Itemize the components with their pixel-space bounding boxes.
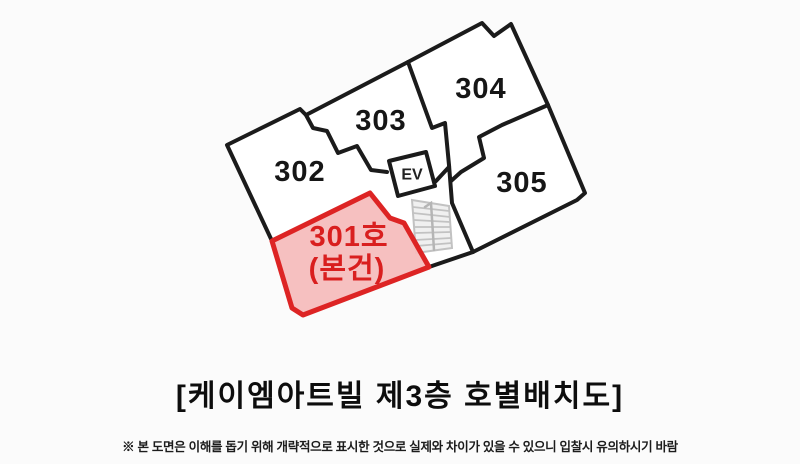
unit-301-sublabel: (본건)	[309, 252, 386, 285]
diagram-title: [케이엠아트빌 제3층 호별배치도]	[0, 371, 800, 415]
unit-302-label: 302	[274, 156, 325, 188]
floor-plan-page: EV 302 303 304 305 301호 (본건) [케이엠아트빌 제3층…	[0, 0, 800, 464]
unit-305-label: 305	[496, 167, 547, 199]
unit-301-label: 301호	[309, 221, 388, 253]
unit-303-label: 303	[355, 105, 406, 137]
elevator-label: EV	[401, 167, 423, 184]
disclaimer-note: ※ 본 도면은 이해를 돕기 위해 개략적으로 표시한 것으로 실제와 차이가 …	[0, 436, 800, 455]
unit-304-label: 304	[455, 73, 506, 105]
